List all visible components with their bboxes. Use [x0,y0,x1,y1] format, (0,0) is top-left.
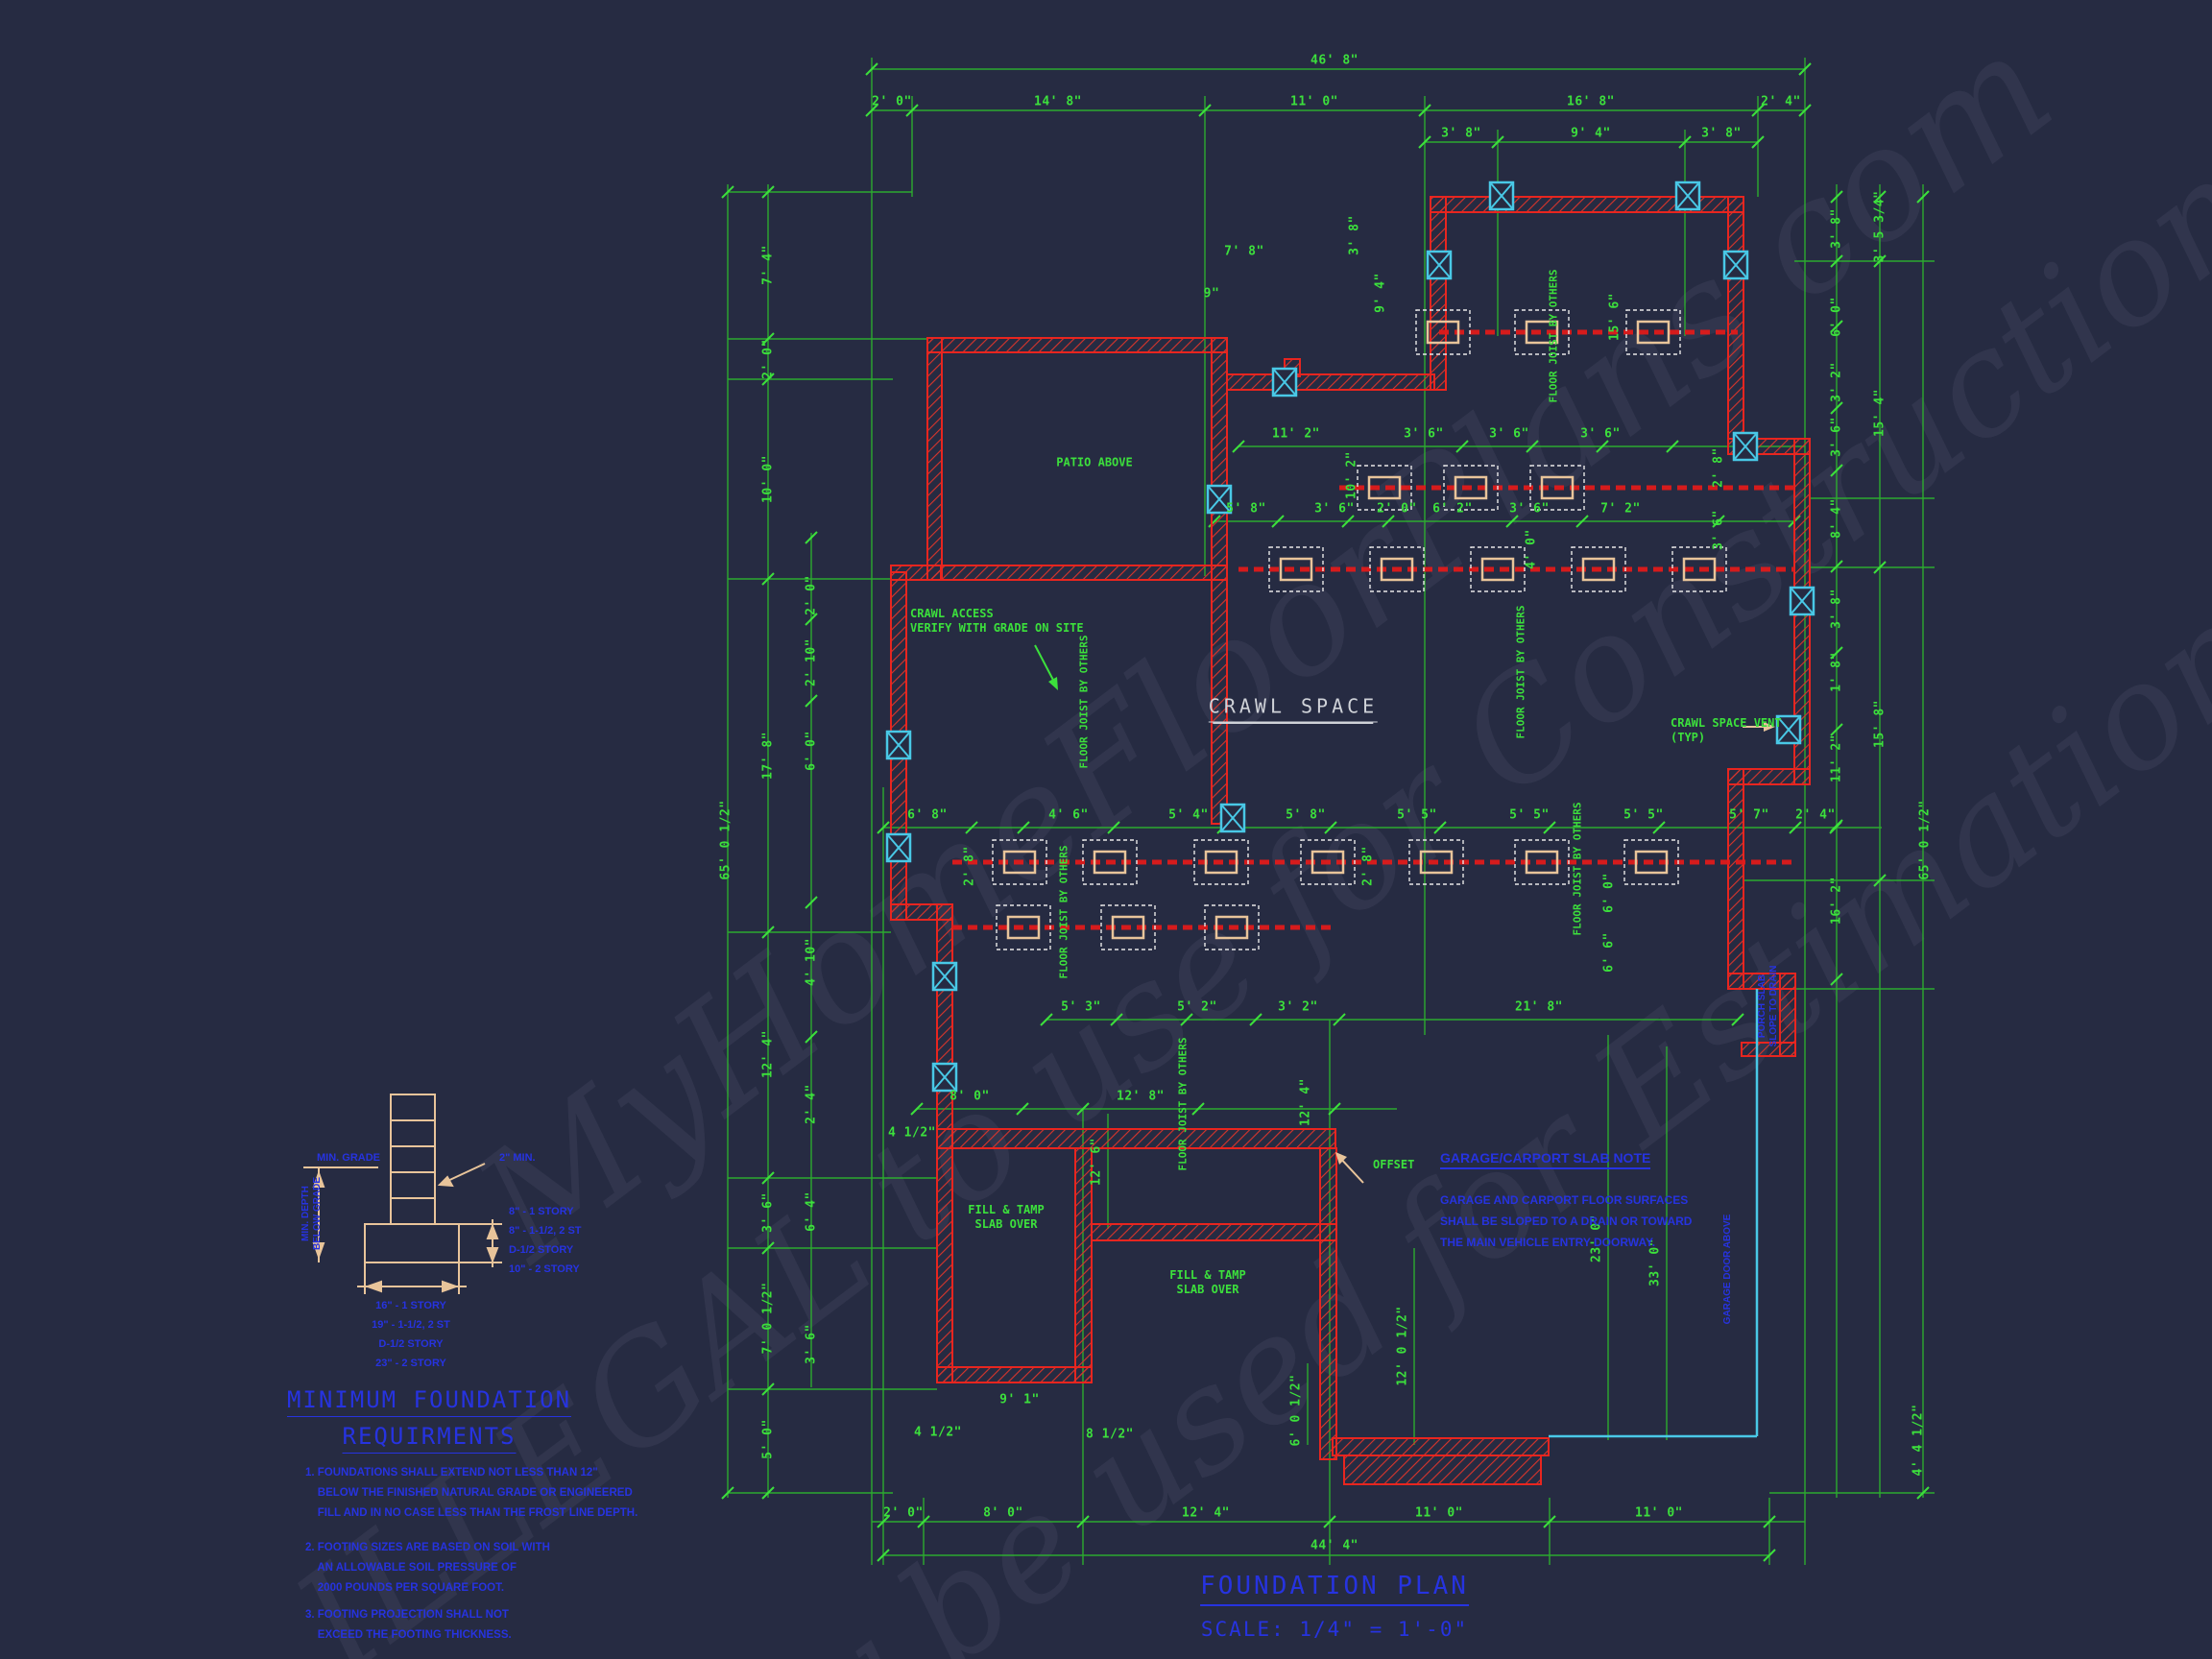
dim-label: 5' 5" [1509,808,1550,823]
detail-bottom-row: 19" - 1-1/2, 2 ST [372,1319,450,1331]
foundation-notes-heading: REQUIRMENTS [343,1423,517,1454]
dim-label: 46' 8" [1310,54,1358,68]
dim-label: 3' 6" [1712,510,1726,550]
dim-label: 3' 6" [1580,427,1621,442]
dim-label: 3' 5 3/4" [1873,191,1887,263]
dim-label: 12' 0 1/2" [1396,1306,1410,1385]
dim-label: 2' 8" [1712,447,1726,488]
garage-note-heading: GARAGE/CARPORT SLAB NOTE [1440,1150,1650,1169]
dim-label: 2' 4" [1795,808,1836,823]
dim-label: 2' 4" [805,1084,819,1124]
detail-bottom-row: D-1/2 STORY [378,1338,443,1350]
dim-label: 5' 4" [1168,808,1209,823]
dim-label: 12' 6" [1090,1138,1104,1186]
dim-label: 14' 8" [1034,95,1082,109]
dim-label: 2' 0" [1377,502,1417,517]
dim-label: 3' 2" [1278,1000,1318,1015]
dim-label: 2' 10" [805,638,819,686]
foundation-detail-section [303,1094,502,1294]
dim-label: 12' 4" [761,1030,776,1078]
dim-label: 9' 4" [1374,273,1388,313]
dim-label: 5' 2" [1177,1000,1217,1015]
crawl-space-vents [887,182,1814,1091]
dim-label: 21' 8" [1515,1000,1563,1015]
dim-label: 15' 4" [1873,389,1887,437]
drawing-title: FOUNDATION PLAN [1200,1572,1469,1606]
dim-label: 3' 6" [761,1192,776,1233]
detail-right-row: 10" - 2 STORY [509,1263,580,1275]
dim-label: 5' 7" [1729,808,1769,823]
dim-label: 4' 10" [805,938,819,986]
dim-label: 7' 8" [1224,245,1264,259]
foundation-note-3: 3. FOOTING PROJECTION SHALL NOT EXCEED T… [305,1605,512,1646]
garage-door-label: GARAGE DOOR ABOVE [1722,1214,1734,1325]
dim-label: 2' 8" [1361,846,1376,886]
dim-label: 9" [1204,287,1220,301]
fill-tamp-label: FILL & TAMP SLAB OVER [1169,1268,1245,1297]
dim-label: 6' 0" [1602,873,1617,913]
dim-label: 5' 8" [1286,808,1326,823]
dim-label: 7' 4" [761,245,776,285]
dim-label: 2' 0" [883,1506,924,1521]
floor-joist-label: FLOOR JOIST BY OTHERS [1078,635,1091,768]
dim-label: 4 1/2" [914,1426,962,1440]
detail-depth-label: MIN. DEPTH BELOW GRADE [301,1177,324,1250]
detail-right-row: D-1/2 STORY [509,1244,573,1256]
dim-label: 8' 0" [983,1506,1023,1521]
foundation-notes-heading: MINIMUM FOUNDATION [287,1386,571,1417]
dim-label: 9' 1" [999,1393,1040,1407]
dim-label: 8 1/2" [1086,1428,1134,1442]
dim-label: 12' 4" [1182,1506,1230,1521]
garage-note-line: SHALL BE SLOPED TO A DRAIN OR TOWARD [1440,1212,1692,1232]
dim-label: 3' 6" [1404,427,1444,442]
garage-note-line: GARAGE AND CARPORT FLOOR SURFACES [1440,1190,1688,1211]
dim-label: 2' 0" [805,575,819,615]
dim-label: 16' 2" [1830,877,1844,925]
dim-label: 6' 4" [805,1191,819,1232]
detail-grade-label: MIN. GRADE [317,1152,380,1164]
dim-label: 5' 0" [761,1419,776,1459]
dim-label: 3' 6" [1509,502,1550,517]
dim-label: 5' 5" [1623,808,1664,823]
dim-label: 3' 8" [1701,127,1742,141]
detail-bottom-row: 16" - 1 STORY [375,1300,446,1311]
dim-label: 2' 0" [872,95,912,109]
detail-bottom-row: 23" - 2 STORY [375,1358,446,1369]
dim-label: 7' 0 1/2" [761,1283,776,1355]
dim-label: 2' 0" [761,339,776,379]
dim-label: 3' 6" [1830,417,1844,457]
fill-tamp-label: FILL & TAMP SLAB OVER [968,1203,1044,1232]
dim-label: 1' 8" [1830,652,1844,692]
dim-label: 6' 6" [1602,932,1617,973]
dim-label: 6' 0 1/2" [1289,1375,1304,1447]
dim-label: 5' 5" [1397,808,1437,823]
detail-right-row: 8" - 1-1/2, 2 ST [509,1225,582,1237]
drawing-scale: SCALE: 1/4" = 1'-0" [1201,1618,1468,1641]
dim-label: 7' 2" [1600,502,1641,517]
dim-label: 3' 8" [1830,589,1844,629]
dim-label: 11' 0" [1290,95,1338,109]
foundation-plan-drawing: MyHomeFloorPlans com ILLEGAL to use for … [0,0,2212,1659]
dim-label: 3' 8" [1441,127,1481,141]
patio-above-label: PATIO ABOVE [1056,456,1132,470]
dim-label: 8' 4" [1830,498,1844,539]
dim-label: 3' 6" [1489,427,1529,442]
dim-label: 4 1/2" [888,1126,936,1141]
dim-label: 6' 2" [1432,502,1473,517]
dim-label: 16' 8" [1567,95,1615,109]
dim-label: 44' 4" [1310,1539,1358,1553]
dim-label: 11' 0" [1415,1506,1463,1521]
dim-label: 3' 6" [1314,502,1355,517]
dim-label: 4' 6" [1048,808,1089,823]
dim-label: 12' 4" [1299,1078,1313,1126]
dim-label: 3' 6" [805,1324,819,1364]
pier-footings [993,310,1726,950]
dim-label: 9' 4" [1571,127,1611,141]
dim-label: 3' 2" [1830,362,1844,402]
dim-label: 8' 0" [950,1090,990,1104]
dim-label: 10' 0" [761,455,776,503]
dim-label: 17' 8" [761,732,776,780]
foundation-note-2: 2. FOOTING SIZES ARE BASED ON SOIL WITH … [305,1538,550,1599]
dim-label: 10' 2" [1345,451,1359,499]
crawl-access-label: CRAWL ACCESS VERIFY WITH GRADE ON SITE [910,607,1084,636]
crawl-space-label: CRAWL SPACE [1209,695,1378,723]
dim-label: 6' 0" [1830,297,1844,337]
floor-joist-label: FLOOR JOIST BY OTHERS [1548,269,1560,402]
detail-right-row: 8" - 1 STORY [509,1206,574,1217]
floor-joist-label: FLOOR JOIST BY OTHERS [1058,845,1070,978]
dim-label: 12' 8" [1117,1090,1165,1104]
floor-joist-label: FLOOR JOIST BY OTHERS [1572,802,1584,935]
dim-label: 6' 0" [805,731,819,771]
foundation-note-1: 1. FOUNDATIONS SHALL EXTEND NOT LESS THA… [305,1463,637,1524]
offset-label: OFFSET [1373,1158,1414,1172]
porch-note-label: PORCH SLAB SLOPE TO DRAIN [1757,966,1780,1047]
floor-joist-label: FLOOR JOIST BY OTHERS [1177,1037,1190,1170]
dim-label: 4' 4 1/2" [1911,1405,1926,1477]
dim-label: 65' 0 1/2" [719,800,733,879]
dim-label: 2' 8" [963,846,977,886]
floor-joist-label: FLOOR JOIST BY OTHERS [1515,605,1527,738]
detail-min-label: 2" MIN. [499,1152,536,1164]
dim-label: 11' 0" [1635,1506,1683,1521]
dim-label: 11' 2" [1830,734,1844,782]
dim-label: 3' 8" [1830,208,1844,249]
dim-label: 15' 6" [1608,293,1623,341]
dim-label: 5' 8" [1226,502,1266,517]
dim-label: 11' 2" [1272,427,1320,442]
dim-label: 6' 8" [907,808,948,823]
dim-label: 15' 8" [1873,700,1887,748]
dim-label: 4' 0" [1525,529,1539,569]
dim-label: 3' 8" [1348,215,1362,255]
dim-label: 65' 0 1/2" [1918,800,1933,879]
dim-label: 5' 3" [1061,1000,1101,1015]
garage-note-line: THE MAIN VEHICLE ENTRY DOORWAY. [1440,1233,1655,1253]
dim-label: 2' 4" [1761,95,1801,109]
crawl-space-vent-label: CRAWL SPACE VENT (TYP) [1671,716,1782,745]
